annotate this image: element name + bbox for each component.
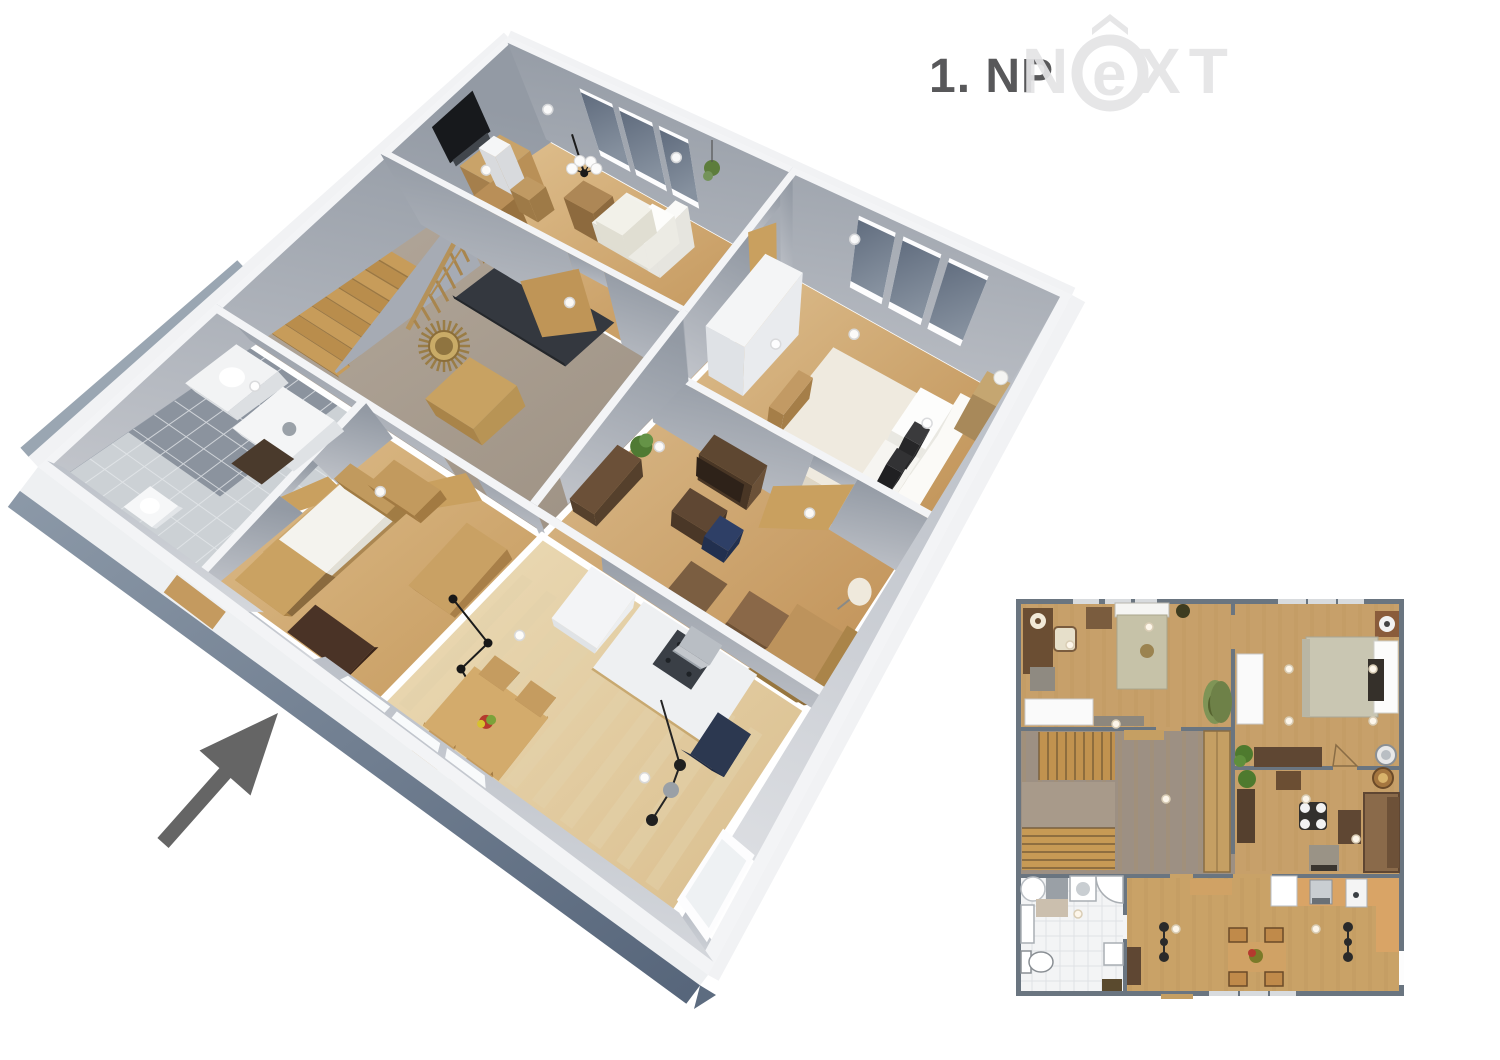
svg-text:XT: XT [1138,35,1236,107]
svg-text:e: e [1092,40,1126,109]
svg-text:N: N [1022,35,1070,107]
